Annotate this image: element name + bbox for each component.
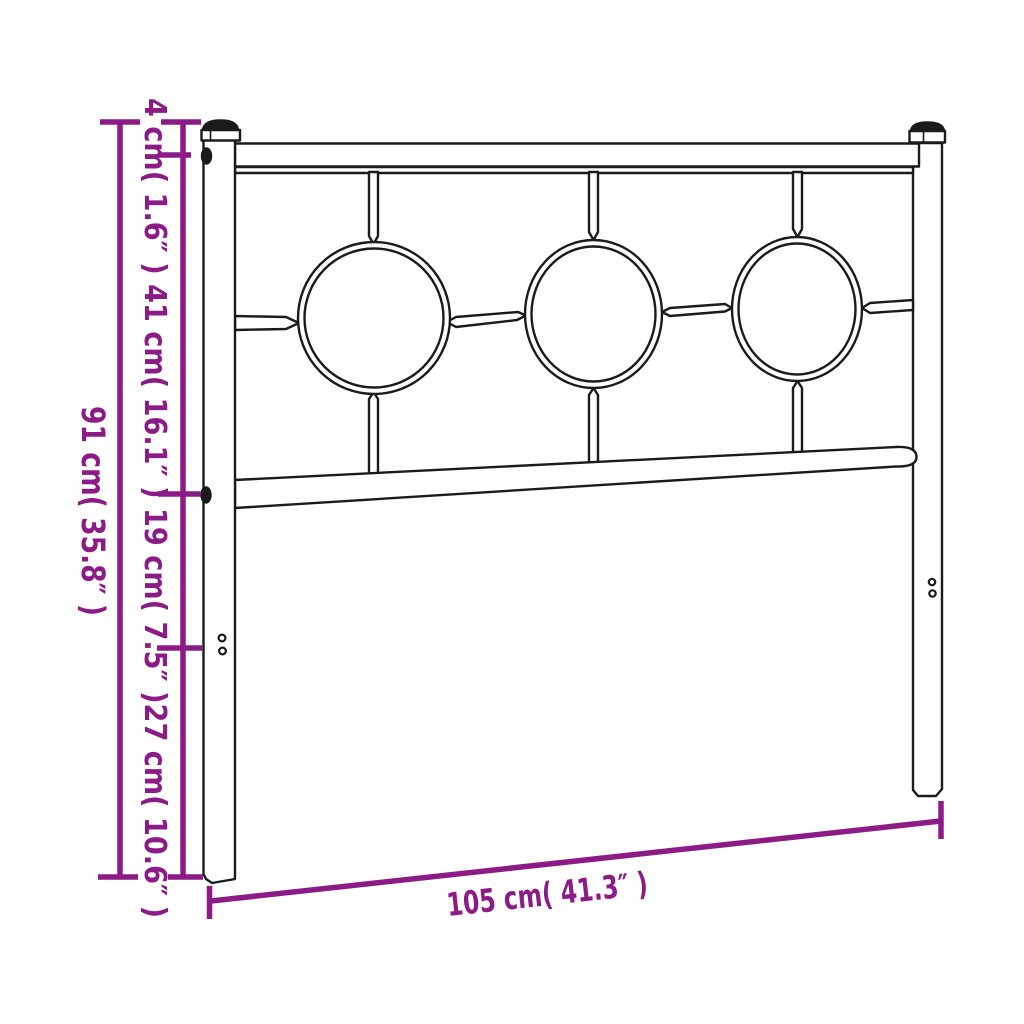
- segment-heights-label: 4 cm( 1.6″ ) 41 cm( 16.1″ ) 19 cm( 7.5″ …: [137, 98, 172, 918]
- left-post-cap-lid: [203, 121, 238, 131]
- right-post-cap: [910, 123, 946, 143]
- connector-ring2-to-ring3: [662, 304, 732, 316]
- ring-3-outer: [732, 237, 862, 381]
- dimension-labels: 91 cm( 35.8″ ) 4 cm( 1.6″ ) 41 cm( 16.1″…: [74, 98, 650, 924]
- right-post: [913, 143, 942, 796]
- hole-right-post-upper: [929, 579, 935, 585]
- headboard-dimension-diagram: 91 cm( 35.8″ ) 4 cm( 1.6″ ) 41 cm( 16.1″…: [0, 0, 1024, 1024]
- hole-right-post-lower: [929, 590, 935, 596]
- left-post-cap-band: [202, 130, 241, 141]
- connector-ring1-to-ring2: [447, 312, 526, 327]
- left-post: [204, 140, 236, 883]
- hole-left-post-lower: [219, 648, 226, 655]
- spoke-bottom-ring2: [589, 388, 598, 466]
- hole-left-post-upper: [219, 635, 226, 642]
- ring-2-outer: [525, 240, 662, 388]
- connector-ring3-to-post: [862, 300, 913, 313]
- inner-rail: [235, 167, 913, 173]
- lower-rail: [235, 447, 917, 508]
- diagram-canvas: 91 cm( 35.8″ ) 4 cm( 1.6″ ) 41 cm( 16.1″…: [0, 0, 1024, 1024]
- spoke-bottom-ring1: [369, 392, 378, 478]
- left-post-cap: [202, 121, 241, 141]
- top-rail: [235, 144, 919, 167]
- screw-left-mid: [202, 488, 211, 503]
- spoke-top-ring3: [793, 172, 802, 237]
- headboard-drawing: [202, 121, 946, 884]
- right-post-cap-band: [910, 131, 946, 143]
- connector-post-to-ring1: [235, 316, 299, 330]
- spoke-bottom-ring3: [793, 381, 802, 456]
- fittings: [202, 149, 936, 655]
- screw-left-top: [202, 149, 211, 164]
- right-post-cap-lid: [911, 123, 944, 132]
- spoke-top-ring2: [589, 172, 598, 240]
- overall-height-label: 91 cm( 35.8″ ): [74, 406, 112, 616]
- spoke-top-ring1: [369, 172, 378, 244]
- ring-1-outer: [298, 242, 450, 394]
